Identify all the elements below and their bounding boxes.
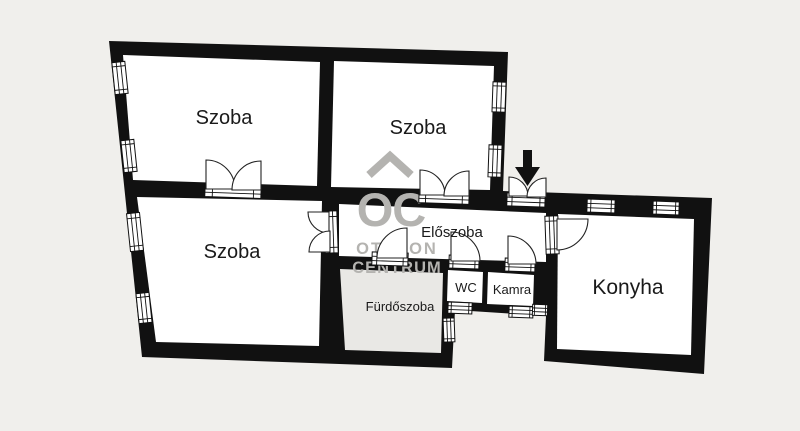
- room-label-konyha: Konyha: [592, 276, 664, 299]
- room-label-kamra: Kamra: [493, 282, 532, 297]
- window-icon: [443, 318, 455, 342]
- room-szoba-bottom-left-fill: [137, 197, 322, 346]
- window-icon: [136, 292, 152, 323]
- room-label-eloszoba: Előszoba: [421, 224, 483, 241]
- window-icon: [587, 199, 615, 213]
- window-icon: [112, 61, 128, 94]
- floorplan-page: OC OTTHON CENTRUM: [0, 0, 800, 431]
- room-label-szoba-top-left: Szoba: [196, 107, 254, 129]
- window-icon: [532, 304, 547, 316]
- window-icon: [121, 139, 137, 172]
- watermark-abbrev: OC: [357, 183, 426, 236]
- window-icon: [448, 302, 472, 314]
- window-icon: [653, 201, 680, 215]
- window-icon: [509, 306, 533, 318]
- floorplan-canvas: OC OTTHON CENTRUM: [0, 0, 800, 431]
- window-icon: [492, 82, 506, 112]
- room-label-furdoszoba: Fürdőszoba: [366, 299, 435, 314]
- room-label-szoba-bottom-left: Szoba: [204, 241, 262, 263]
- room-label-wc: WC: [455, 280, 477, 295]
- room-label-szoba-top-center: Szoba: [390, 117, 448, 139]
- window-icon: [488, 145, 502, 178]
